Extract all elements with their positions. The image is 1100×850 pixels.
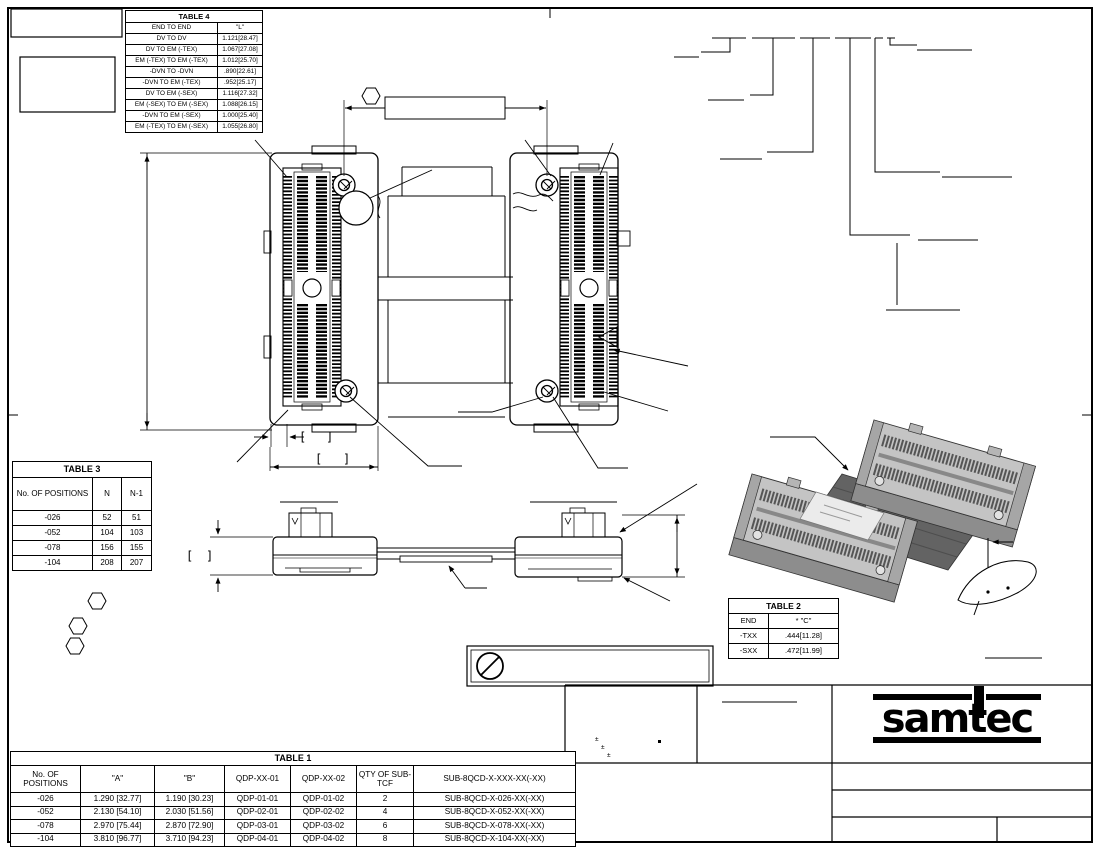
cell: DV TO DV [126, 34, 218, 45]
cell: SUB-8QCD-X-052-XX(-XX) [414, 806, 576, 820]
table-1: TABLE 1 No. OF POSITIONS"A""B"QDP-XX-01Q… [10, 751, 576, 847]
hex-flag-icon [69, 618, 87, 634]
cell: EM (-TEX) TO EM (-TEX) [126, 56, 218, 67]
screw-bottom-right [536, 380, 558, 402]
cell: 6 [357, 820, 414, 834]
cell: .444[11.28] [769, 629, 839, 644]
cell: QDP-02-02 [291, 806, 357, 820]
pitch-dimension [254, 424, 304, 447]
assembly-side-view [210, 484, 697, 601]
cell: QDP-04-02 [291, 833, 357, 847]
cell: 1.121[28.47] [218, 34, 263, 45]
cell: QTY OF SUB-TCF [357, 766, 414, 793]
cell: 4 [357, 806, 414, 820]
cell: QDP-01-01 [225, 793, 291, 807]
cell: * "C" [769, 614, 839, 629]
part-number-tree [674, 38, 1012, 310]
screw-bottom-left [335, 380, 357, 402]
drawing-sheet: TABLE 4 END TO END"L" DV TO DV1.121[28.4… [0, 0, 1100, 850]
table-row: DV TO EM (-TEX)1.067[27.08] [126, 45, 263, 56]
dim-bracket: ] [343, 452, 350, 466]
cell: -104 [11, 833, 81, 847]
table-row: EM (-TEX) TO EM (-SEX)1.055[26.80] [126, 122, 263, 133]
hex-flag-icon [362, 88, 380, 104]
cell: 2 [357, 793, 414, 807]
cell: 2.130 [54.10] [81, 806, 155, 820]
table-row: -DVN TO EM (-SEX)1.000[25.40] [126, 111, 263, 122]
cell: .952[25.17] [218, 78, 263, 89]
cell: 3.710 [94.23] [155, 833, 225, 847]
cell: 3.810 [96.77] [81, 833, 155, 847]
dim-bracket: [ [299, 430, 306, 444]
cell: 52 [93, 511, 122, 526]
table-row: -0782.970 [75.44]2.870 [72.90]QDP-03-01Q… [11, 820, 576, 834]
cell: SUB-8QCD-X-XXX-XX(-XX) [414, 766, 576, 793]
table-row: TABLE 4 [126, 11, 263, 23]
table-row: -052104103 [13, 526, 152, 541]
table-row: -104208207 [13, 556, 152, 571]
cell: 103 [122, 526, 152, 541]
cell: QDP-02-01 [225, 806, 291, 820]
table-row: END* "C" [729, 614, 839, 629]
table-row: -TXX.444[11.28] [729, 629, 839, 644]
cell: -DVN TO EM (-TEX) [126, 78, 218, 89]
hex-flag-icon [88, 593, 106, 609]
cell: 1.116[27.32] [218, 89, 263, 100]
cell: -052 [11, 806, 81, 820]
cell: "A" [81, 766, 155, 793]
cell: 1.290 [32.77] [81, 793, 155, 807]
cell: SUB-8QCD-X-078-XX(-XX) [414, 820, 576, 834]
screw-top-right [536, 174, 558, 196]
cell: EM (-TEX) TO EM (-SEX) [126, 122, 218, 133]
cell: 2.970 [75.44] [81, 820, 155, 834]
left-inner-connector [283, 164, 341, 410]
cell: DV TO EM (-TEX) [126, 45, 218, 56]
cell: QDP-04-01 [225, 833, 291, 847]
redacted-dim-box [385, 97, 505, 119]
table-row: -078156155 [13, 541, 152, 556]
side-left-connector [273, 508, 377, 575]
cell: N-1 [122, 478, 152, 511]
top-dimension [344, 97, 547, 176]
table-row: DV TO DV1.121[28.47] [126, 34, 263, 45]
cell: -104 [13, 556, 93, 571]
dim-bracket: ] [326, 430, 333, 444]
table-2: TABLE 2 END* "C" -TXX.444[11.28] -SXX.47… [728, 598, 839, 659]
table-row: No. OF POSITIONS"A""B"QDP-XX-01QDP-XX-02… [11, 766, 576, 793]
left-dimension [140, 153, 272, 430]
table-row: END TO END"L" [126, 23, 263, 34]
dim-bracket: [ [186, 549, 193, 563]
cell: 208 [93, 556, 122, 571]
cell: 1.012[25.70] [218, 56, 263, 67]
table-title: TABLE 1 [11, 752, 576, 766]
table-title: TABLE 3 [13, 462, 152, 478]
cell: 2.030 [51.56] [155, 806, 225, 820]
cell: "B" [155, 766, 225, 793]
cell: 8 [357, 833, 414, 847]
cell: 1.190 [30.23] [155, 793, 225, 807]
ribbon-cable-plan [378, 167, 553, 417]
table-row: TABLE 1 [11, 752, 576, 766]
table-title: TABLE 2 [729, 599, 839, 614]
cell: SUB-8QCD-X-104-XX(-XX) [414, 833, 576, 847]
side-dimensions [210, 515, 685, 592]
cell: -078 [11, 820, 81, 834]
cell: -DVN TO -DVN [126, 67, 218, 78]
cell: -SXX [729, 644, 769, 659]
table-4: TABLE 4 END TO END"L" DV TO DV1.121[28.4… [125, 10, 263, 133]
dim-bracket: ] [206, 549, 213, 563]
table-row: TABLE 2 [729, 599, 839, 614]
iso-label-leader [770, 437, 848, 470]
table-row: -DVN TO EM (-TEX).952[25.17] [126, 78, 263, 89]
table-row: -SXX.472[11.99] [729, 644, 839, 659]
tolerance-mark: ± [607, 752, 611, 759]
body-width-dimension [270, 426, 378, 471]
cell: -TXX [729, 629, 769, 644]
table-row: EM (-TEX) TO EM (-TEX)1.012[25.70] [126, 56, 263, 67]
cell: 207 [122, 556, 152, 571]
cell: 51 [122, 511, 152, 526]
table-row: -0522.130 [54.10]2.030 [51.56]QDP-02-01Q… [11, 806, 576, 820]
cell: -026 [13, 511, 93, 526]
right-inner-connector [560, 164, 618, 410]
table-row: TABLE 3 [13, 462, 152, 478]
dot-mark [658, 740, 661, 743]
notes-boxes [11, 9, 122, 112]
label-fold-detail [958, 538, 1042, 658]
hex-flag-icon [66, 638, 84, 654]
cell: .890[22.61] [218, 67, 263, 78]
cell: N [93, 478, 122, 511]
cell: DV TO EM (-SEX) [126, 89, 218, 100]
dim-bracket: [ [315, 452, 322, 466]
cell: 156 [93, 541, 122, 556]
brand-wordmark: samtec [873, 698, 1041, 740]
table-row: -1043.810 [96.77]3.710 [94.23]QDP-04-01Q… [11, 833, 576, 847]
cell: -026 [11, 793, 81, 807]
cell: END TO END [126, 23, 218, 34]
cell: 2.870 [72.90] [155, 820, 225, 834]
no-symbol-icon [477, 653, 503, 679]
cell: -DVN TO EM (-SEX) [126, 111, 218, 122]
cell: QDP-XX-02 [291, 766, 357, 793]
cell: No. OF POSITIONS [13, 478, 93, 511]
cell: END [729, 614, 769, 629]
cell: -078 [13, 541, 93, 556]
samtec-logo: samtec [873, 694, 1041, 754]
logo-t-stem [974, 686, 984, 718]
cell: 1.000[25.40] [218, 111, 263, 122]
table-title: TABLE 4 [126, 11, 263, 23]
cell: 104 [93, 526, 122, 541]
cell: No. OF POSITIONS [11, 766, 81, 793]
compliance-note-box [467, 646, 713, 686]
table-3: TABLE 3 No. OF POSITIONSNN-1 -0265251 -0… [12, 461, 152, 571]
cell: EM (-SEX) TO EM (-SEX) [126, 100, 218, 111]
tolerance-mark: ± [595, 736, 599, 743]
cell: QDP-01-02 [291, 793, 357, 807]
cell: 1.067[27.08] [218, 45, 263, 56]
table-row: -0261.290 [32.77]1.190 [30.23]QDP-01-01Q… [11, 793, 576, 807]
table-row: No. OF POSITIONSNN-1 [13, 478, 152, 511]
cell: 1.088[26.15] [218, 100, 263, 111]
table-row: -0265251 [13, 511, 152, 526]
cell: SUB-8QCD-X-026-XX(-XX) [414, 793, 576, 807]
table-row: EM (-SEX) TO EM (-SEX)1.088[26.15] [126, 100, 263, 111]
tolerance-mark: ± [601, 744, 605, 751]
side-cable [377, 548, 515, 562]
cell: -052 [13, 526, 93, 541]
side-right-connector [515, 508, 622, 581]
cell: QDP-XX-01 [225, 766, 291, 793]
table-row: -DVN TO -DVN.890[22.61] [126, 67, 263, 78]
cell: 1.055[26.80] [218, 122, 263, 133]
assembly-top-view [140, 97, 688, 471]
cell: QDP-03-02 [291, 820, 357, 834]
cell: "L" [218, 23, 263, 34]
cell: QDP-03-01 [225, 820, 291, 834]
table-row: DV TO EM (-SEX)1.116[27.32] [126, 89, 263, 100]
cell: .472[11.99] [769, 644, 839, 659]
cell: 155 [122, 541, 152, 556]
